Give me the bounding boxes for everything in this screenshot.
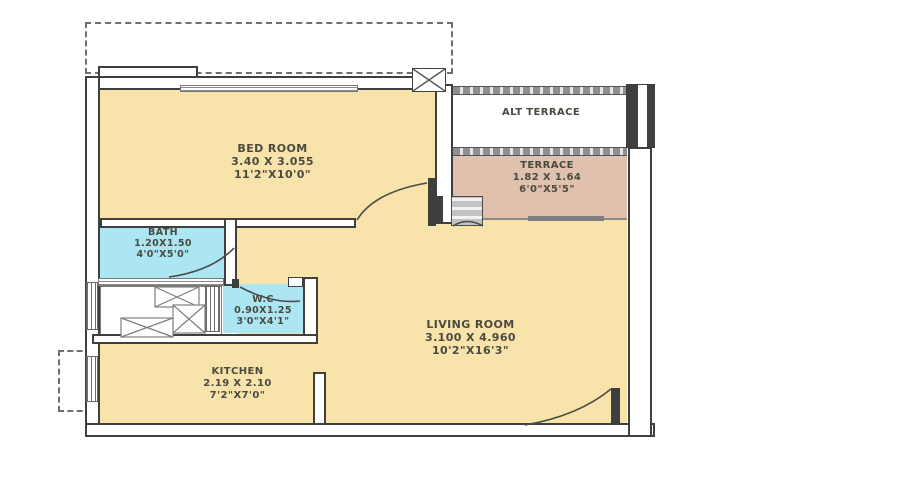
terrace-label: TERRACE 1.82 X 1.64 6'0"X5'5" bbox=[477, 160, 617, 196]
alt-terrace-top-slab-hatch bbox=[453, 86, 627, 95]
terrace-entry-step bbox=[451, 196, 483, 226]
wc-imperial-dims: 3'0"X4'1" bbox=[220, 316, 306, 327]
living-room-imperial-dims: 10'2"X16'3" bbox=[378, 344, 563, 357]
bedroom-name: BED ROOM bbox=[170, 142, 375, 155]
wc-label: W.C 0.90X1.25 3'0"X4'1" bbox=[220, 294, 306, 327]
bath-imperial-dims: 4'0"X5'0" bbox=[104, 249, 222, 260]
living-room-metric-dims: 3.100 X 4.960 bbox=[378, 331, 563, 344]
kitchen-top-wall bbox=[92, 334, 318, 344]
wc-top-wall-stub bbox=[288, 277, 303, 287]
kitchen-name: KITCHEN bbox=[155, 366, 320, 378]
terrace-name: TERRACE bbox=[477, 160, 617, 172]
outer-right-wall bbox=[628, 147, 652, 437]
terrace-sliding-window-bar bbox=[528, 216, 604, 221]
duct-shaft-area bbox=[100, 286, 222, 336]
bath-metric-dims: 1.20X1.50 bbox=[104, 238, 222, 249]
floor-plan: BED ROOM 3.40 X 3.055 11'2"X10'0" ALT TE… bbox=[0, 0, 900, 500]
right-column-gap bbox=[637, 84, 648, 148]
outer-bottom-wall bbox=[85, 423, 655, 437]
living-room-name: LIVING ROOM bbox=[378, 318, 563, 331]
top-wall-column bbox=[412, 68, 446, 92]
alt-terrace-bottom-slab-hatch bbox=[453, 147, 627, 156]
bedroom-top-window bbox=[180, 85, 358, 92]
kitchen-imperial-dims: 7'2"X7'0" bbox=[155, 390, 320, 402]
bath-right-wall bbox=[224, 218, 237, 286]
alt-terrace-area bbox=[453, 95, 627, 147]
bath-shaft-sill bbox=[98, 278, 224, 286]
bedroom-imperial-dims: 11'2"X10'0" bbox=[170, 168, 375, 181]
living-room-label: LIVING ROOM 3.100 X 4.960 10'2"X16'3" bbox=[378, 318, 563, 357]
terrace-imperial-dims: 6'0"X5'5" bbox=[477, 184, 617, 196]
bath-label: BATH 1.20X1.50 4'0"X5'0" bbox=[104, 227, 222, 260]
kitchen-metric-dims: 2.19 X 2.10 bbox=[155, 378, 320, 390]
shaft-louver bbox=[205, 286, 220, 332]
bedroom-label: BED ROOM 3.40 X 3.055 11'2"X10'0" bbox=[170, 142, 375, 181]
main-door-leaf bbox=[611, 388, 620, 425]
right-column-outer bbox=[626, 84, 637, 148]
bath-name: BATH bbox=[104, 227, 222, 238]
terrace-metric-dims: 1.82 X 1.64 bbox=[477, 172, 617, 184]
alt-terrace-label: ALT TERRACE bbox=[496, 107, 586, 119]
bedroom-metric-dims: 3.40 X 3.055 bbox=[170, 155, 375, 168]
kitchen-left-window bbox=[86, 356, 98, 402]
bath-left-window bbox=[86, 282, 98, 330]
kitchen-label: KITCHEN 2.19 X 2.10 7'2"X7'0" bbox=[155, 366, 320, 402]
wc-name: W.C bbox=[220, 294, 306, 305]
bedroom-door-jamb bbox=[428, 178, 436, 226]
right-column-inner bbox=[648, 84, 655, 148]
alt-terrace-name: ALT TERRACE bbox=[502, 107, 580, 118]
wc-metric-dims: 0.90X1.25 bbox=[220, 305, 306, 316]
wc-door-jamb bbox=[232, 279, 239, 288]
